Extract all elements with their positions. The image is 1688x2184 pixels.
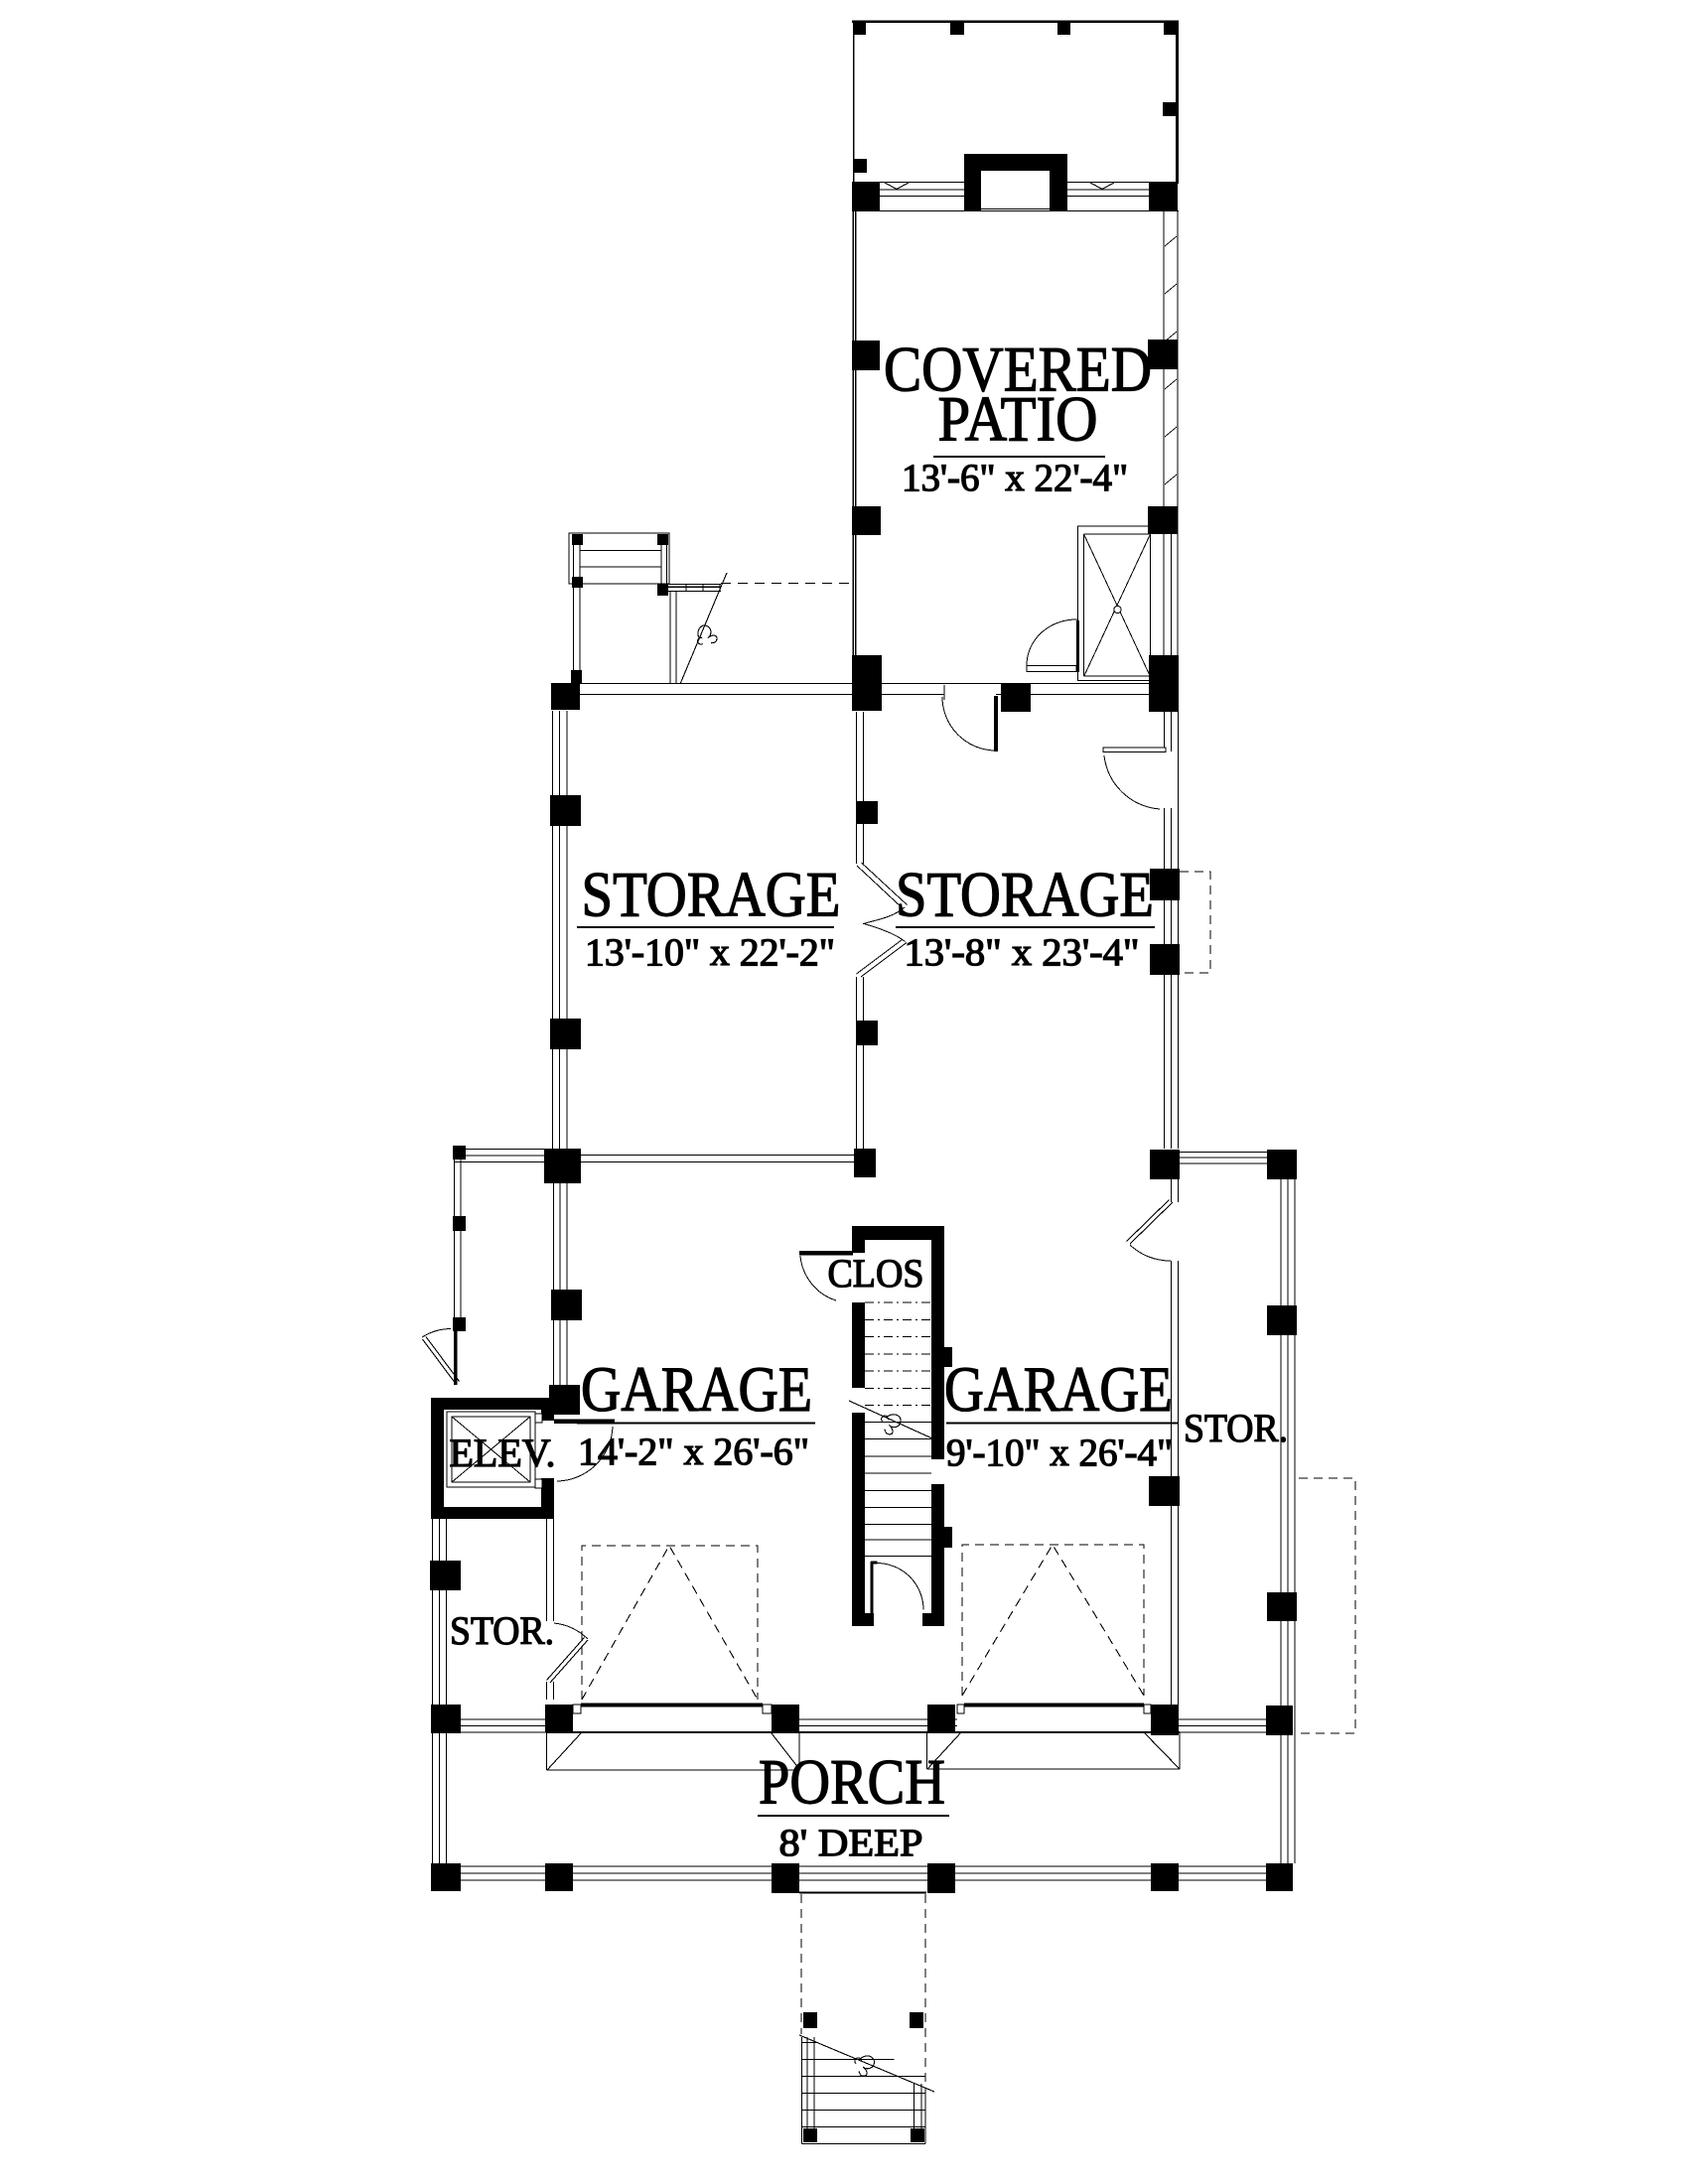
svg-text:13'-6" x 22'-4": 13'-6" x 22'-4" xyxy=(902,457,1128,499)
svg-text:8' DEEP: 8' DEEP xyxy=(779,1822,923,1864)
svg-text:STORAGE: STORAGE xyxy=(582,860,841,931)
svg-text:CLOS: CLOS xyxy=(828,1251,924,1296)
svg-text:9'-10" x 26'-4": 9'-10" x 26'-4" xyxy=(946,1432,1173,1474)
svg-text:STORAGE: STORAGE xyxy=(896,860,1154,931)
svg-text:13'-10" x 22'-2": 13'-10" x 22'-2" xyxy=(585,931,835,974)
svg-text:14'-2" x 26'-6": 14'-2" x 26'-6" xyxy=(578,1431,809,1473)
svg-text:PORCH: PORCH xyxy=(759,1747,945,1819)
svg-text:PATIO: PATIO xyxy=(938,384,1098,456)
svg-text:13'-8" x 23'-4": 13'-8" x 23'-4" xyxy=(905,931,1140,974)
svg-text:STOR.: STOR. xyxy=(1184,1406,1288,1450)
svg-text:ELEV.: ELEV. xyxy=(450,1431,556,1475)
svg-text:STOR.: STOR. xyxy=(450,1608,554,1653)
svg-text:GARAGE: GARAGE xyxy=(944,1354,1173,1426)
svg-text:GARAGE: GARAGE xyxy=(581,1354,812,1426)
